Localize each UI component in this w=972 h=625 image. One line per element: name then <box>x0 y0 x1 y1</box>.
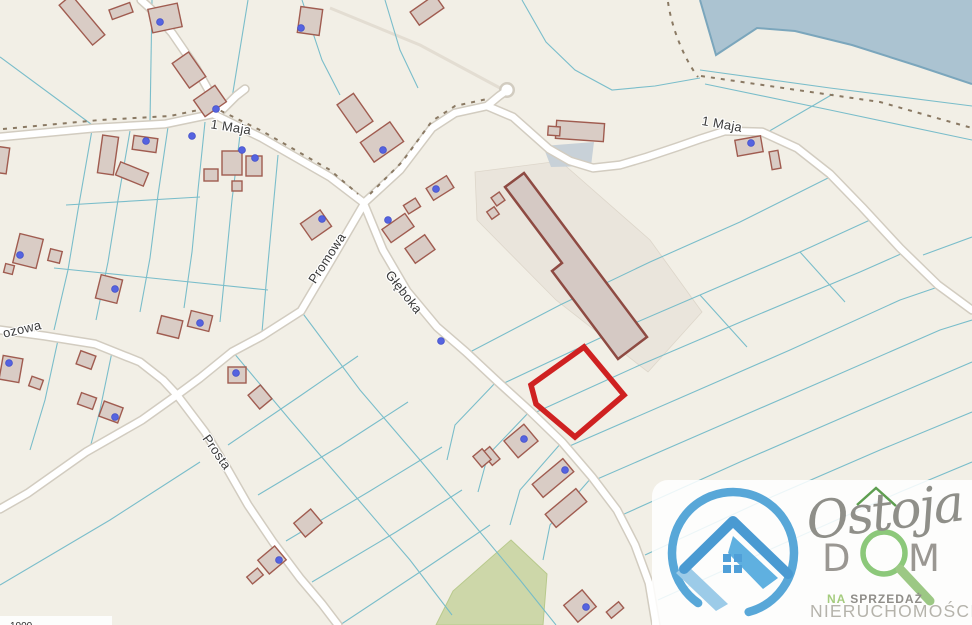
parcel-line <box>700 70 972 106</box>
building <box>555 120 604 141</box>
building <box>232 181 242 191</box>
building <box>4 264 15 275</box>
address-dot <box>433 186 440 193</box>
building <box>564 590 597 622</box>
parcel-line <box>140 127 168 312</box>
building <box>606 602 623 618</box>
address-dot <box>252 155 259 162</box>
brand-dom-d: D <box>822 540 851 577</box>
address-dot <box>112 286 119 293</box>
building <box>360 122 403 162</box>
address-dot <box>213 106 220 113</box>
building <box>410 0 444 25</box>
address-dot <box>521 436 528 443</box>
address-dot <box>157 19 164 26</box>
building <box>157 316 183 339</box>
building <box>300 210 331 240</box>
parcel-line <box>54 268 268 290</box>
parcel-line <box>522 0 700 90</box>
green-area <box>436 540 547 625</box>
building <box>545 489 587 528</box>
parcel-line <box>312 490 462 582</box>
road-prosta <box>177 395 338 625</box>
parcel-line <box>66 197 200 205</box>
address-dot <box>380 147 387 154</box>
address-dot <box>276 557 283 564</box>
address-dot <box>112 414 119 421</box>
building <box>405 235 435 264</box>
building <box>222 151 242 175</box>
parcel-line <box>923 237 972 255</box>
building <box>0 146 10 174</box>
building <box>204 169 218 181</box>
building <box>77 393 96 410</box>
brand-dom-m: M <box>908 540 940 577</box>
building <box>0 355 23 382</box>
footpath-to-shore <box>668 2 698 77</box>
address-dot <box>17 252 24 259</box>
building <box>426 176 454 201</box>
building <box>248 385 272 409</box>
address-dot <box>197 320 204 327</box>
parcel-line <box>0 57 95 127</box>
building <box>97 135 118 175</box>
building <box>99 401 123 423</box>
parcel-line <box>184 122 205 308</box>
building <box>109 3 133 20</box>
building <box>13 234 44 269</box>
address-dot <box>143 138 150 145</box>
address-dot <box>438 338 445 345</box>
parcel-line <box>232 0 248 98</box>
scale-text: 1000 <box>10 621 112 625</box>
address-dot <box>748 140 755 147</box>
building <box>403 198 420 214</box>
building <box>59 0 105 45</box>
building <box>769 150 781 169</box>
parcel-line <box>262 155 278 332</box>
address-dot <box>239 147 246 154</box>
parcel-line <box>30 340 58 450</box>
parcel-line <box>54 130 92 330</box>
address-dot <box>562 467 569 474</box>
building <box>148 3 182 33</box>
building <box>294 509 322 537</box>
address-dot <box>298 25 305 32</box>
parcel-line <box>0 462 200 585</box>
scale-control: 1000 <box>0 616 112 625</box>
parcel-line <box>766 94 833 133</box>
address-dot <box>189 133 196 140</box>
address-dot <box>385 217 392 224</box>
address-dot <box>319 216 326 223</box>
building <box>115 162 148 186</box>
building <box>247 568 264 584</box>
building <box>29 376 44 390</box>
brand-nieruchomosci: NIERUCHOMOŚCI <box>810 601 972 622</box>
building <box>337 93 373 132</box>
address-dot <box>233 370 240 377</box>
address-dot <box>583 604 590 611</box>
building <box>48 249 63 264</box>
building <box>532 459 574 498</box>
building <box>76 351 96 370</box>
parcel-line <box>301 311 556 625</box>
building <box>548 126 561 136</box>
parcel-line <box>700 295 747 347</box>
address-dot <box>6 360 13 367</box>
map-canvas[interactable]: 1 Maja 1 Maja Promowa Głęboka Prosta ozo… <box>0 0 972 625</box>
culdesac-bulb <box>502 85 513 96</box>
